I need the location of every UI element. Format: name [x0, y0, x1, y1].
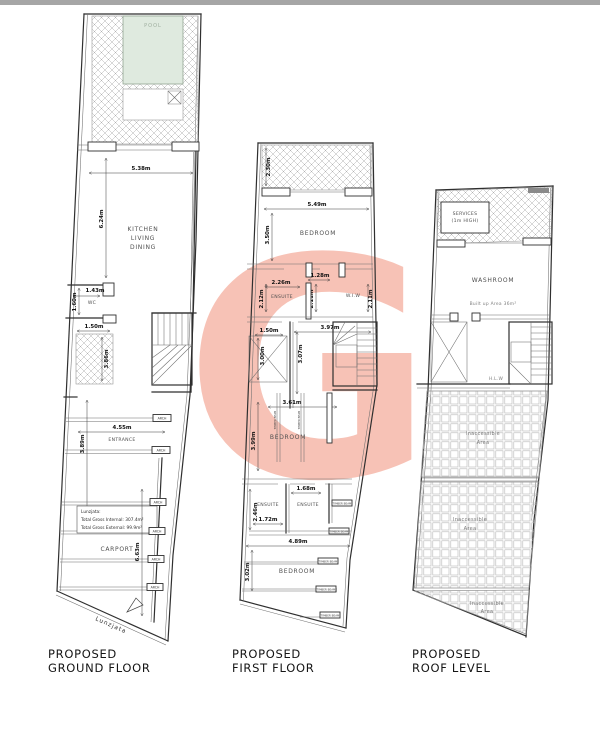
arch-tag: ARCH	[154, 501, 163, 505]
roof-title-line2: ROOF LEVEL	[412, 661, 491, 675]
north-arrow-icon	[127, 598, 143, 612]
note-title: Lunzjata:	[81, 509, 101, 515]
timber-beams-horizontal: TIMBER BEAM TIMBER BEAM TIMBER BEAM	[242, 558, 340, 618]
first-title-line1: PROPOSED	[232, 647, 301, 661]
dim-3-89: 3.89m	[80, 434, 86, 453]
ground-title-line1: PROPOSED	[48, 647, 117, 661]
note-internal-area: Total Gross Internal: 307.4m²	[80, 517, 144, 523]
kitchen-label-2: LIVING	[131, 235, 155, 242]
dim-6-24: 6.24m	[99, 209, 105, 228]
ground-stairs	[152, 313, 196, 392]
dim-1-60: 1.60m	[72, 292, 78, 311]
roof-stairs	[509, 322, 552, 384]
dim-3-07: 3.07m	[298, 344, 304, 363]
roof-level-plan: SERVICES (1m HIGH) WASHROOM Built up Are…	[412, 186, 553, 675]
first-ensuites: 1.68m ENSUITE ENSUITE 2.46m 1.72m TIMBER…	[242, 479, 352, 546]
carport-label: CARPORT	[100, 546, 133, 553]
dim-1-72: 1.72m	[259, 517, 278, 523]
dim-6-63: 6.63m	[135, 542, 141, 561]
kitchen-label-3: DINING	[130, 244, 156, 251]
roof-lintel	[528, 188, 549, 193]
bedroom3-label: BEDROOM	[279, 568, 315, 575]
bedroom1-label: BEDROOM	[300, 230, 336, 237]
ground-title-line2: GROUND FLOOR	[48, 661, 151, 675]
arch-tag: ARCH	[153, 530, 162, 534]
timber-beam-tag: TIMBER BEAM	[320, 614, 340, 618]
roof-title-line1: PROPOSED	[412, 647, 481, 661]
dim-4-55: 4.55m	[113, 425, 132, 431]
ensuite3-label: ENSUITE	[297, 502, 319, 508]
dim-1-28: 1.28m	[311, 273, 330, 279]
dim-3-86: 3.86m	[104, 349, 110, 368]
dim-1-50: 1.50m	[85, 324, 104, 330]
dim-3-50: 3.50m	[265, 225, 271, 244]
timber-beam-tag: TIMBER BEAM	[316, 588, 336, 592]
dim-4-89: 4.89m	[289, 539, 308, 545]
dim-1-43: 1.43m	[86, 288, 105, 294]
arch-tag: ARCH	[157, 449, 166, 453]
first-boundary	[240, 143, 377, 632]
dim-3-61: 3.61m	[283, 400, 302, 406]
inaccessible2-line2: Area	[464, 526, 477, 532]
inaccessible1-line1: Inaccessible	[466, 431, 500, 437]
dim-3-99: 3.99m	[251, 431, 257, 450]
wiw-label: W.I.W	[346, 293, 360, 299]
services-label-2: (1m HIGH)	[452, 218, 479, 224]
floor-plans-canvas: POOL 5.38m 6.24m KITCHEN LIVING DINING	[0, 0, 600, 737]
terrace-hatch	[262, 145, 372, 190]
services-label-1: SERVICES	[453, 211, 478, 217]
dim-2-11-b: 2.11m	[368, 289, 374, 308]
timber-beam-tag: TIMBER BEAM	[329, 530, 349, 534]
dim-2-26: 2.26m	[272, 280, 291, 286]
ground-floor-plan: POOL 5.38m 6.24m KITCHEN LIVING DINING	[48, 14, 201, 675]
arch-tag: ARCH	[151, 586, 160, 590]
first-floor-plan: 2.30m 5.49m 3.50m BEDROOM 2.26m 1.28m EN…	[232, 143, 377, 675]
first-title-line2: FIRST FLOOR	[232, 661, 314, 675]
dim-2-30: 2.30m	[266, 157, 272, 176]
bedroom2-label: BEDROOM	[270, 434, 306, 441]
inaccessible-area-2	[414, 482, 539, 588]
dim-3-97: 3.97m	[321, 325, 340, 331]
void-shaft	[249, 336, 287, 382]
arch-tag: ARCH	[158, 417, 167, 421]
wc-label: WC	[88, 300, 96, 306]
services-box	[441, 202, 489, 233]
pool-label: POOL	[144, 23, 162, 29]
inaccessible3-line1: Inaccessible	[470, 601, 504, 607]
builtup-area-label: Built up Area 36m²	[470, 301, 517, 307]
timber-beam-tag: TIMBER BEAM	[332, 502, 352, 506]
dim-1-68: 1.68m	[297, 486, 316, 492]
hlw-label: H.L.W	[489, 376, 504, 382]
timber-beam-tag: TIMBER BEAM	[318, 560, 338, 564]
ensuite2-label: ENSUITE	[257, 502, 279, 508]
wc-area: 1.43m WC 1.60m 1.50m	[66, 283, 116, 331]
arch-tags: ARCH ARCH ARCH ARCH ARCH ARCH	[147, 415, 171, 591]
timber-beam-tag: TIMBER BEAM	[297, 410, 301, 430]
dim-1-50-ff: 1.50m	[260, 328, 279, 334]
dim-5-38: 5.38m	[132, 166, 151, 172]
entrance-label: ENTRANCE	[108, 437, 135, 443]
inaccessible-area-3	[414, 590, 529, 634]
dim-5-49: 5.49m	[308, 202, 327, 208]
inaccessible2-line1: Inaccessible	[453, 517, 487, 523]
kitchen-label-1: KITCHEN	[128, 226, 159, 233]
timber-beam-tag: TIMBER BEAM	[273, 410, 277, 430]
inaccessible3-line2: Area	[481, 609, 494, 615]
carport-area: Lunzjata: Total Gross Internal: 307.4m² …	[59, 458, 162, 622]
arch-tag: ARCH	[152, 558, 161, 562]
dim-2-12: 2.12m	[259, 289, 265, 308]
dim-3-00: 3.00m	[260, 346, 266, 365]
ensuite1-label: ENSUITE	[271, 294, 293, 300]
inaccessible1-line2: Area	[477, 440, 490, 446]
dim-3-02: 3.02m	[245, 562, 251, 581]
roof-walls	[417, 313, 550, 388]
washroom-label: WASHROOM	[472, 277, 514, 284]
drawing-sheet: G	[0, 0, 600, 737]
note-external-area: Total Gross External: 99.9m²	[80, 525, 142, 531]
roof-shaft	[431, 322, 467, 382]
